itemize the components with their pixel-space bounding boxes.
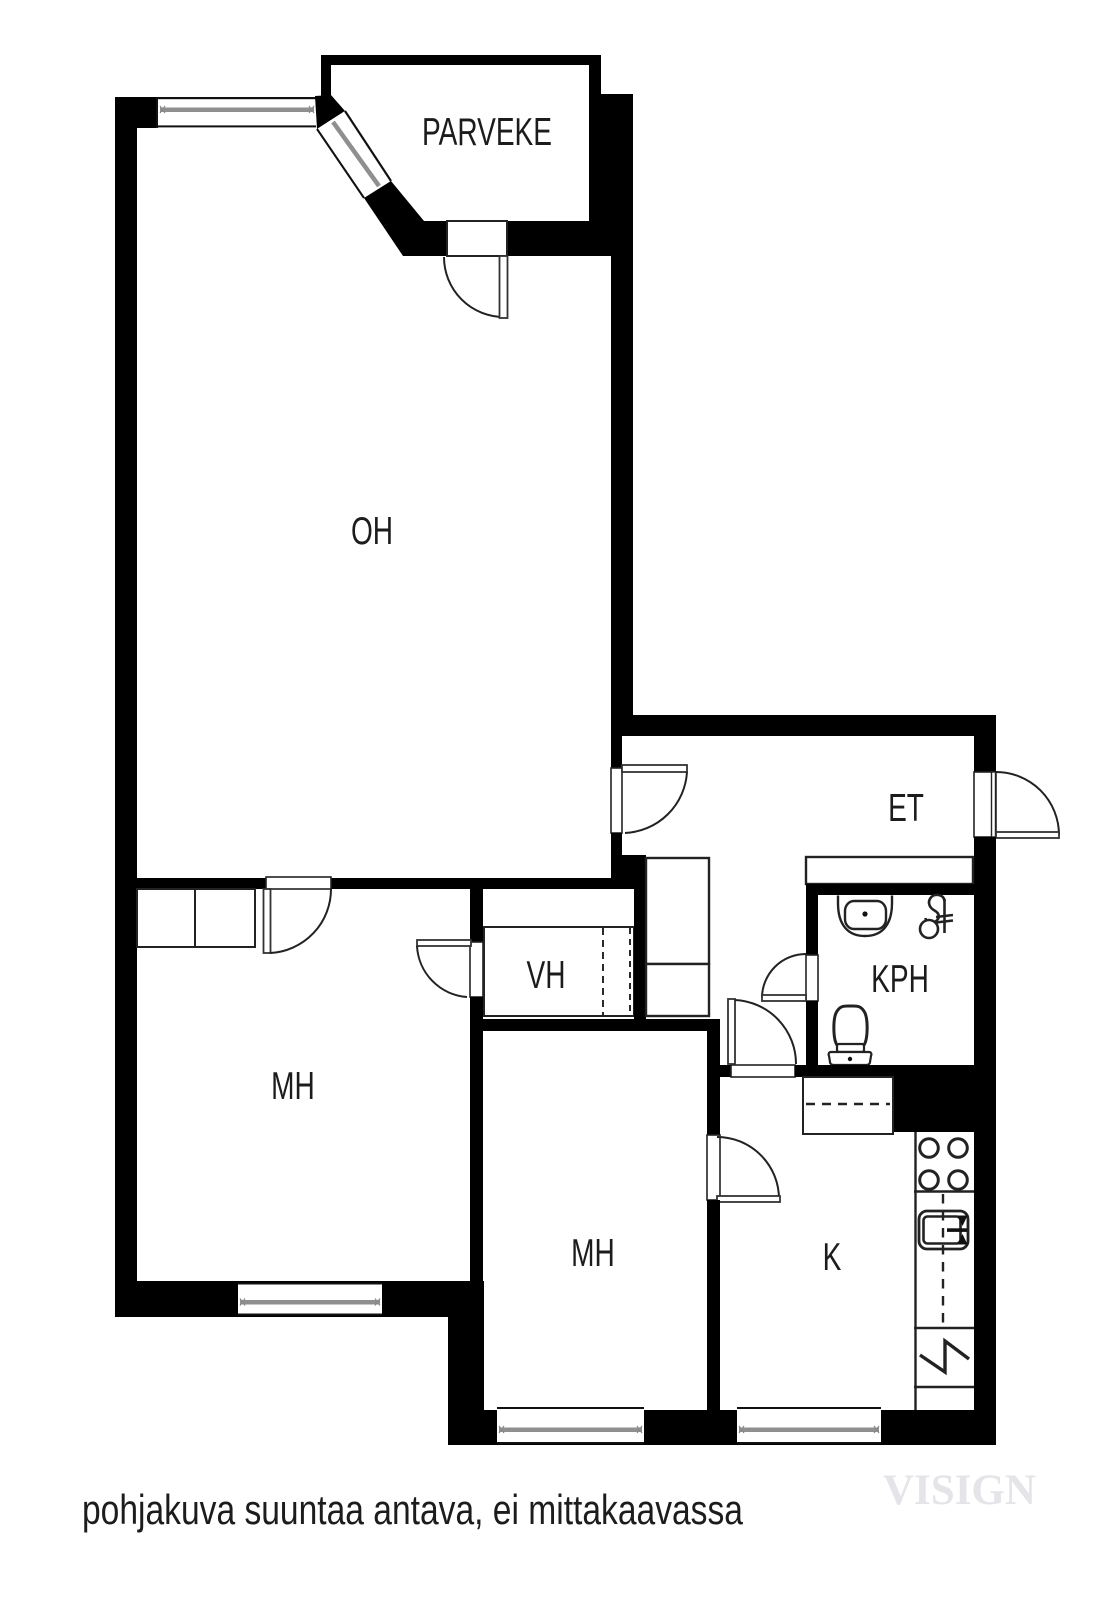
svg-text:MH: MH bbox=[271, 1065, 315, 1109]
svg-text:OH: OH bbox=[351, 510, 393, 554]
svg-text:VISIGN: VISIGN bbox=[883, 1467, 1036, 1514]
svg-text:ET: ET bbox=[888, 787, 924, 831]
svg-text:pohjakuva suuntaa antava, ei m: pohjakuva suuntaa antava, ei mittakaavas… bbox=[82, 1488, 744, 1534]
svg-text:VH: VH bbox=[526, 954, 565, 998]
svg-text:MH: MH bbox=[571, 1232, 615, 1276]
svg-text:PARVEKE: PARVEKE bbox=[422, 111, 552, 155]
svg-text:K: K bbox=[823, 1236, 842, 1280]
svg-text:KPH: KPH bbox=[871, 958, 929, 1002]
